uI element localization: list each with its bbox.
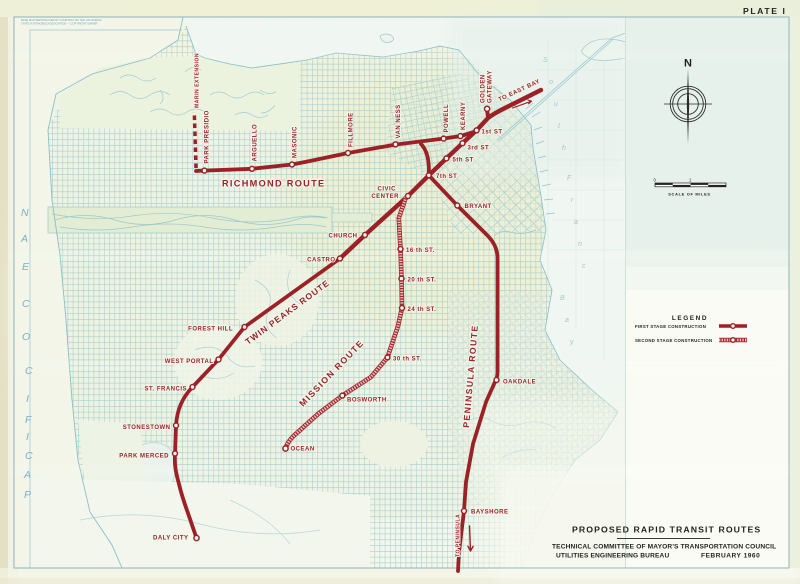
svg-text:N: N <box>684 58 692 70</box>
svg-text:VAN NESS: VAN NESS <box>396 104 402 138</box>
svg-text:o: o <box>549 79 553 86</box>
svg-text:KEARNY: KEARNY <box>461 102 467 130</box>
svg-text:I: I <box>26 393 29 405</box>
svg-text:MASONIC: MASONIC <box>293 126 299 158</box>
svg-text:C: C <box>22 298 30 310</box>
svg-text:h: h <box>562 145 566 152</box>
svg-text:UTILITIES ENGINEERING BUREAU: UTILITIES ENGINEERING BUREAU <box>556 553 669 560</box>
svg-text:MARIN EXTENSION: MARIN EXTENSION <box>195 53 201 108</box>
svg-text:PARK PRESIDIO: PARK PRESIDIO <box>205 110 211 163</box>
svg-text:5th ST: 5th ST <box>453 158 474 164</box>
svg-text:GOLDEN: GOLDEN <box>481 74 487 103</box>
svg-text:DALY CITY: DALY CITY <box>153 536 189 542</box>
svg-text:ARGUELLO: ARGUELLO <box>253 124 259 162</box>
svg-text:FIRST STAGE CONSTRUCTION: FIRST STAGE CONSTRUCTION <box>635 324 706 329</box>
svg-text:n: n <box>578 241 582 248</box>
svg-text:16 th ST.: 16 th ST. <box>406 248 435 254</box>
svg-text:3rd ST: 3rd ST <box>468 146 490 152</box>
svg-text:FILLMORE: FILLMORE <box>349 112 355 147</box>
svg-text:POWELL: POWELL <box>444 104 450 133</box>
svg-text:BOSWORTH: BOSWORTH <box>347 398 387 404</box>
svg-text:CENTER: CENTER <box>371 194 399 200</box>
svg-text:BASE MAP REPRODUCED BY COURTES: BASE MAP REPRODUCED BY COURTESY OF THE C… <box>21 18 102 22</box>
svg-text:30 th ST.: 30 th ST. <box>393 357 422 363</box>
svg-text:A: A <box>20 233 28 245</box>
svg-text:RICHMOND ROUTE: RICHMOND ROUTE <box>222 179 325 189</box>
svg-text:1st ST: 1st ST <box>482 130 503 136</box>
svg-text:ST. FRANCIS: ST. FRANCIS <box>144 387 187 393</box>
svg-text:I: I <box>26 431 29 443</box>
svg-text:a: a <box>574 219 578 226</box>
svg-text:CASTRO: CASTRO <box>307 258 335 264</box>
svg-text:F: F <box>25 414 32 426</box>
svg-text:c: c <box>582 263 586 270</box>
svg-text:OAKDALE: OAKDALE <box>503 380 536 386</box>
svg-text:P: P <box>24 489 31 501</box>
svg-text:FEBRUARY 1960: FEBRUARY 1960 <box>701 553 760 560</box>
svg-text:CHURCH: CHURCH <box>329 234 358 240</box>
svg-text:SCALE OF MILES: SCALE OF MILES <box>668 191 710 196</box>
svg-text:E: E <box>22 261 30 273</box>
svg-text:a: a <box>565 317 569 324</box>
svg-text:PROPOSED RAPID TRANSIT ROUTES: PROPOSED RAPID TRANSIT ROUTES <box>572 525 761 535</box>
svg-text:F: F <box>567 175 572 182</box>
svg-text:24 th ST.: 24 th ST. <box>408 307 437 313</box>
svg-text:FOREST HILL: FOREST HILL <box>188 327 233 333</box>
svg-text:O: O <box>22 331 30 343</box>
svg-text:WEST PORTAL: WEST PORTAL <box>165 359 214 365</box>
svg-text:BAYSHORE: BAYSHORE <box>471 510 508 516</box>
svg-text:GATEWAY: GATEWAY <box>488 70 494 103</box>
svg-text:BRYANT: BRYANT <box>465 204 492 210</box>
svg-text:B: B <box>560 295 565 302</box>
svg-text:C: C <box>25 450 33 462</box>
svg-text:LEGEND: LEGEND <box>672 315 708 322</box>
svg-text:y: y <box>569 339 574 346</box>
svg-text:u: u <box>554 101 558 108</box>
svg-text:7th ST: 7th ST <box>436 174 457 180</box>
svg-text:N: N <box>21 207 29 219</box>
svg-text:OCEAN: OCEAN <box>291 447 315 453</box>
svg-text:CIVIC: CIVIC <box>377 187 396 193</box>
svg-text:STONESTOWN: STONESTOWN <box>123 425 171 431</box>
svg-text:STATE AUTOMOBILE ASSOCIATION —: STATE AUTOMOBILE ASSOCIATION — COPYRIGHT… <box>21 22 97 26</box>
svg-text:20 th ST.: 20 th ST. <box>408 278 437 284</box>
svg-text:TO PENINSULA: TO PENINSULA <box>456 514 462 557</box>
svg-text:SECOND STAGE CONSTRUCTION: SECOND STAGE CONSTRUCTION <box>635 338 712 343</box>
svg-text:PLATE I: PLATE I <box>743 6 787 16</box>
svg-text:TECHNICAL COMMITTEE OF MAYOR'S: TECHNICAL COMMITTEE OF MAYOR'S TRANSPORT… <box>552 544 776 551</box>
svg-text:PARK MERCED: PARK MERCED <box>119 454 169 460</box>
